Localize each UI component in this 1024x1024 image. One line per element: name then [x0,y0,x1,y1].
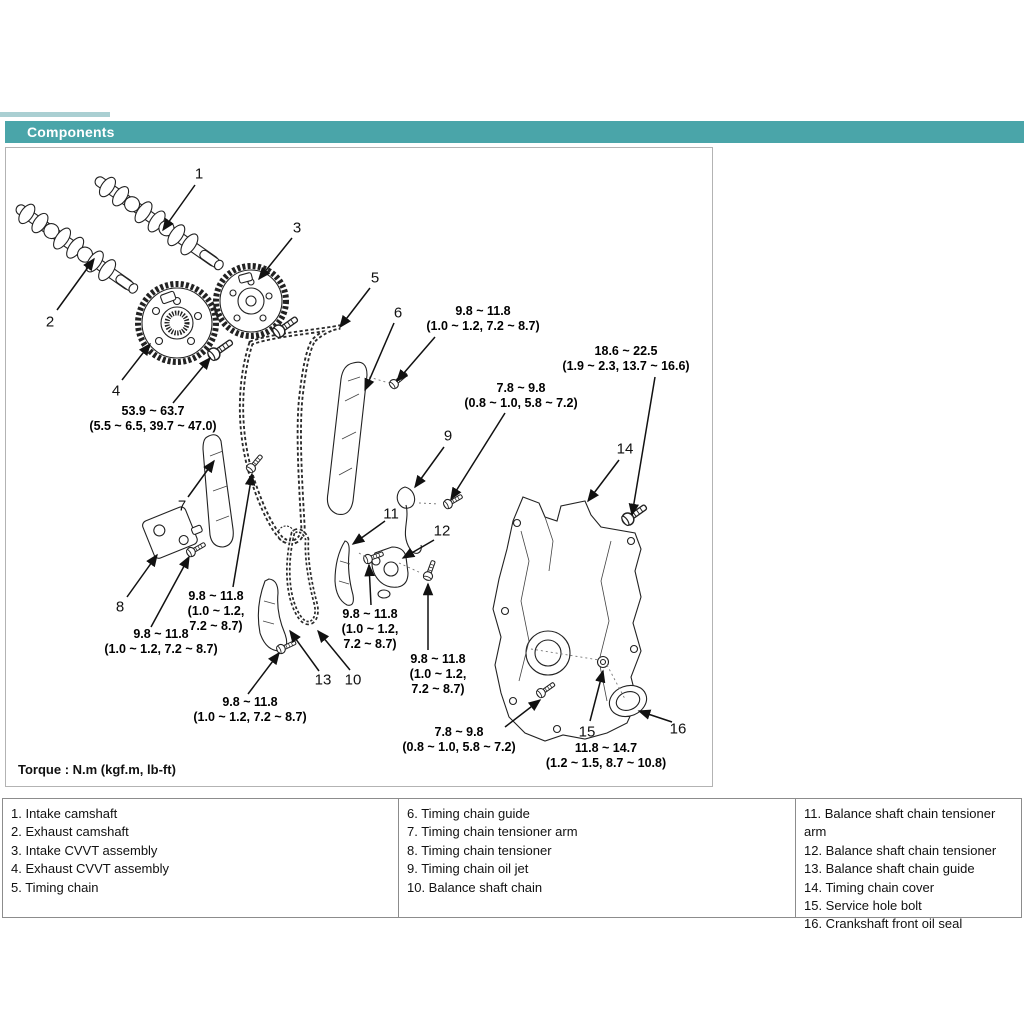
legend-item: 16. Crankshaft front oil seal [804,915,1013,933]
callout-number-12: 12 [434,523,451,540]
legend-item: 3. Intake CVVT assembly [11,842,390,860]
legend-item: 13. Balance shaft chain guide [804,860,1013,878]
section-header: Components [5,121,1024,143]
legend-item: 15. Service hole bolt [804,897,1013,915]
legend-item: 9. Timing chain oil jet [407,860,787,878]
legend-item: 7. Timing chain tensioner arm [407,823,787,841]
callout-number-3: 3 [293,220,301,237]
legend-table: 1. Intake camshaft2. Exhaust camshaft3. … [2,798,1022,918]
torque-spec-label: 11.8 ~ 14.7(1.2 ~ 1.5, 8.7 ~ 10.8) [546,741,666,771]
manual-page: Components [0,0,1024,1024]
callout-number-13: 13 [315,672,332,689]
callout-labels: 1234567891011121314151653.9 ~ 63.7(5.5 ~… [6,148,712,786]
callout-number-1: 1 [195,166,203,183]
callout-number-16: 16 [670,721,687,738]
torque-spec-label: 53.9 ~ 63.7(5.5 ~ 6.5, 39.7 ~ 47.0) [89,404,216,434]
torque-spec-label: 18.6 ~ 22.5(1.9 ~ 2.3, 13.7 ~ 16.6) [562,344,689,374]
callout-number-14: 14 [617,441,634,458]
legend-column-2: 6. Timing chain guide7. Timing chain ten… [399,799,796,917]
legend-item: 10. Balance shaft chain [407,879,787,897]
top-rule-fragment [0,112,110,117]
legend-item: 12. Balance shaft chain tensioner [804,842,1013,860]
torque-spec-label: 7.8 ~ 9.8(0.8 ~ 1.0, 5.8 ~ 7.2) [402,725,515,755]
torque-note: Torque : N.m (kgf.m, lb-ft) [18,762,176,777]
legend-column-3: 11. Balance shaft chain tensioner arm12.… [796,799,1021,917]
callout-number-7: 7 [178,498,186,515]
torque-spec-label: 9.8 ~ 11.8(1.0 ~ 1.2, 7.2 ~ 8.7) [193,695,306,725]
legend-item: 14. Timing chain cover [804,879,1013,897]
callout-number-9: 9 [444,428,452,445]
legend-item: 8. Timing chain tensioner [407,842,787,860]
torque-spec-label: 9.8 ~ 11.8(1.0 ~ 1.2,7.2 ~ 8.7) [342,607,399,652]
callout-number-5: 5 [371,270,379,287]
torque-spec-label: 7.8 ~ 9.8(0.8 ~ 1.0, 5.8 ~ 7.2) [464,381,577,411]
legend-item: 2. Exhaust camshaft [11,823,390,841]
legend-item: 4. Exhaust CVVT assembly [11,860,390,878]
torque-spec-label: 9.8 ~ 11.8(1.0 ~ 1.2,7.2 ~ 8.7) [410,652,467,697]
legend-item: 11. Balance shaft chain tensioner arm [804,805,1013,842]
diagram-panel: 1234567891011121314151653.9 ~ 63.7(5.5 ~… [5,147,713,787]
legend-item: 5. Timing chain [11,879,390,897]
callout-number-8: 8 [116,599,124,616]
legend-item: 1. Intake camshaft [11,805,390,823]
callout-number-4: 4 [112,383,120,400]
callout-number-10: 10 [345,672,362,689]
callout-number-11: 11 [383,506,399,523]
callout-number-2: 2 [46,314,54,331]
callout-number-15: 15 [579,724,596,741]
torque-spec-label: 9.8 ~ 11.8(1.0 ~ 1.2, 7.2 ~ 8.7) [426,304,539,334]
legend-item: 6. Timing chain guide [407,805,787,823]
legend-column-1: 1. Intake camshaft2. Exhaust camshaft3. … [3,799,399,917]
callout-number-6: 6 [394,305,402,322]
torque-spec-label: 9.8 ~ 11.8(1.0 ~ 1.2, 7.2 ~ 8.7) [104,627,217,657]
section-title: Components [5,124,115,140]
